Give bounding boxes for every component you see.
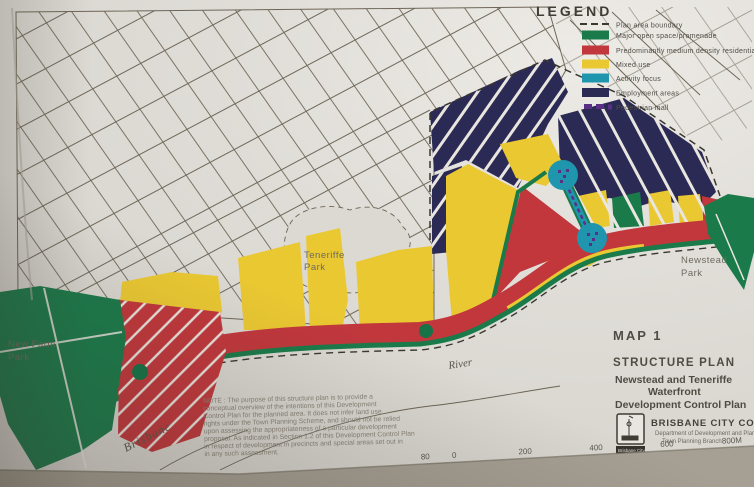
structure-plan-map: Teneriffe Park Newstead Park New Farm Pa… (0, 0, 754, 487)
photo-shading (0, 0, 754, 487)
